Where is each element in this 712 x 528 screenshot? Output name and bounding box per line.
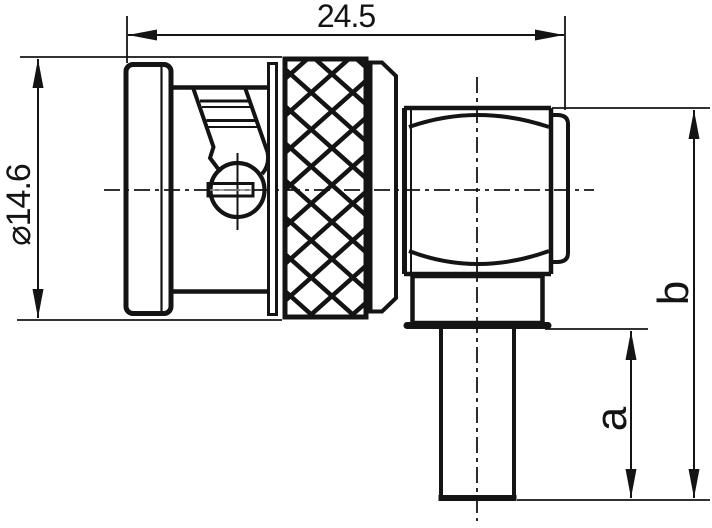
arrowhead-down [33, 289, 44, 318]
dimension-b: b [517, 108, 710, 500]
dimension-diameter: ⌀14.6 [0, 57, 282, 320]
knurled-coupling-nut [285, 59, 396, 317]
arrowhead-right [535, 30, 564, 41]
dimension-label: b [649, 281, 698, 305]
dimension-label: a [587, 406, 636, 431]
arrowhead-up [626, 331, 637, 360]
dimension-a: a [545, 329, 648, 498]
knurl-cross-hatch [285, 59, 366, 317]
arrowhead-up [689, 110, 700, 139]
body-bottom-arc [409, 251, 549, 264]
right-angle-body [404, 108, 568, 274]
dimension-label: 24.5 [317, 0, 375, 34]
dimension-label: ⌀14.6 [0, 164, 38, 246]
body-top-arc [409, 115, 549, 127]
rear-nut-band [371, 63, 397, 312]
shell-front-ring [269, 64, 277, 315]
arrowhead-up [33, 59, 44, 88]
arrowhead-down [626, 469, 637, 498]
technical-drawing-canvas: 24.5 ⌀14.6 b a [0, 0, 712, 528]
arrowhead-down [689, 469, 700, 498]
rear-cap [551, 115, 568, 262]
bayonet-slot-detail [194, 89, 269, 230]
connector-drawing: 24.5 ⌀14.6 b a [0, 0, 712, 528]
bnc-front-flange [126, 65, 171, 314]
arrowhead-left [128, 30, 157, 41]
flange-outline [126, 65, 171, 314]
